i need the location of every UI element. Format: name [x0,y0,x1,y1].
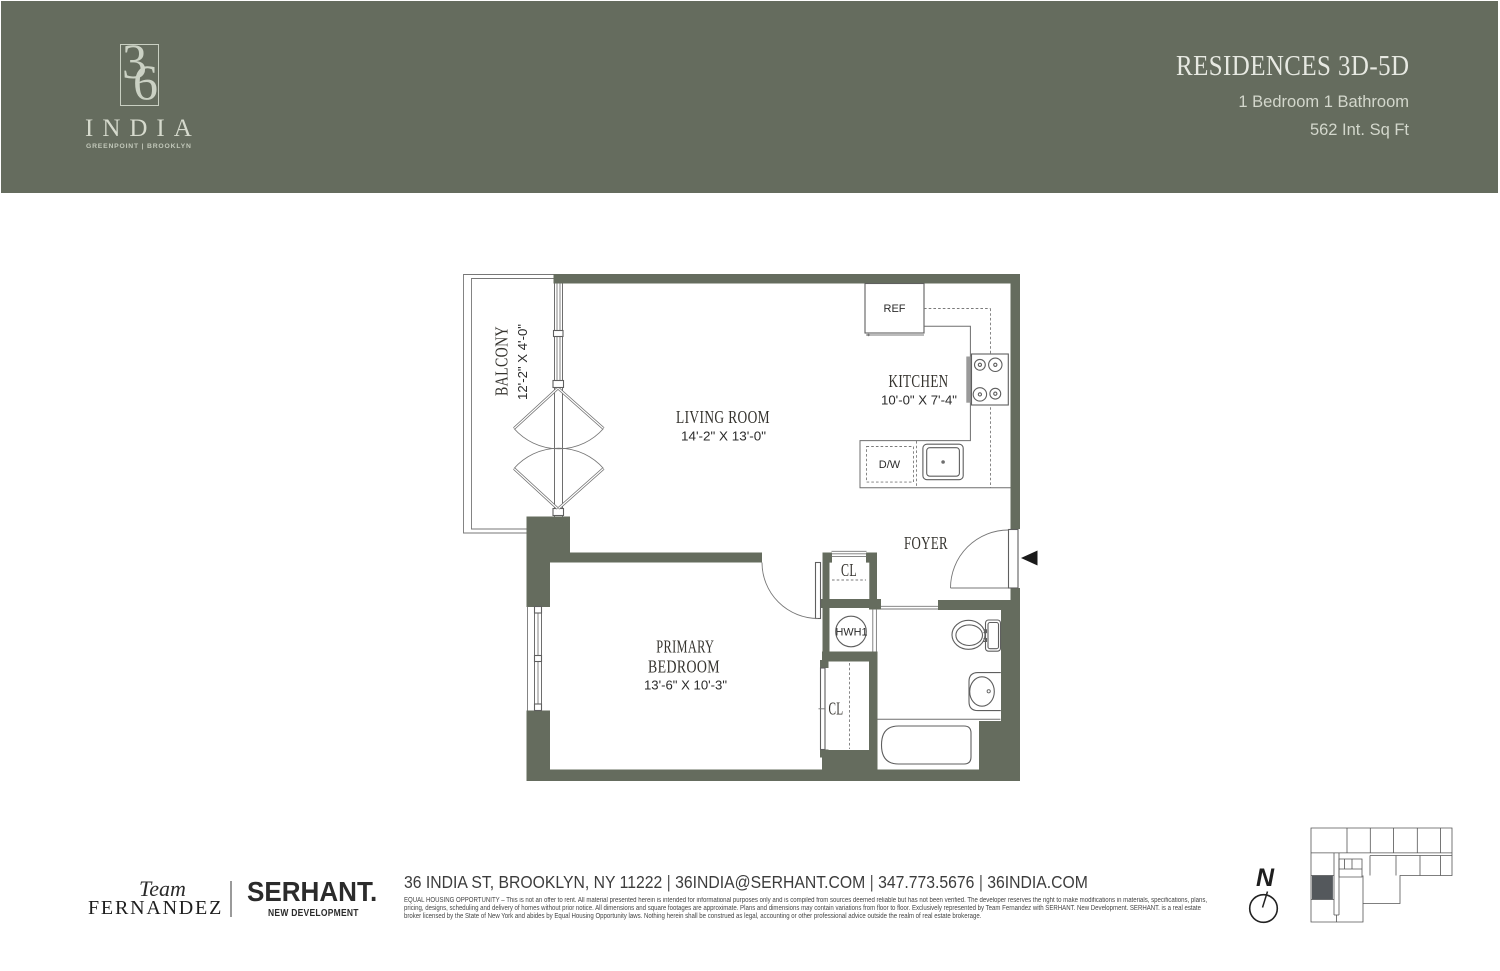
svg-text:KITCHEN: KITCHEN [889,371,949,391]
svg-text:PRIMARY: PRIMARY [656,636,714,656]
svg-text:BALCONY: BALCONY [492,326,512,396]
svg-text:CL: CL [829,699,844,719]
svg-text:CL: CL [841,560,857,580]
svg-text:HWH1: HWH1 [836,627,868,639]
svg-text:N: N [1256,864,1275,892]
svg-text:FOYER: FOYER [904,533,948,553]
svg-text:LIVING ROOM: LIVING ROOM [676,407,770,427]
svg-text:12'-2" X 4'-0": 12'-2" X 4'-0" [515,324,530,400]
svg-text:REF: REF [884,303,906,315]
svg-text:BEDROOM: BEDROOM [648,657,720,677]
svg-text:D/W: D/W [879,459,901,471]
svg-text:14'-2" X 13'-0": 14'-2" X 13'-0" [681,429,766,444]
svg-text:13'-6" X 10'-3": 13'-6" X 10'-3" [644,678,727,693]
svg-text:10'-0" X 7'-4": 10'-0" X 7'-4" [881,393,957,408]
